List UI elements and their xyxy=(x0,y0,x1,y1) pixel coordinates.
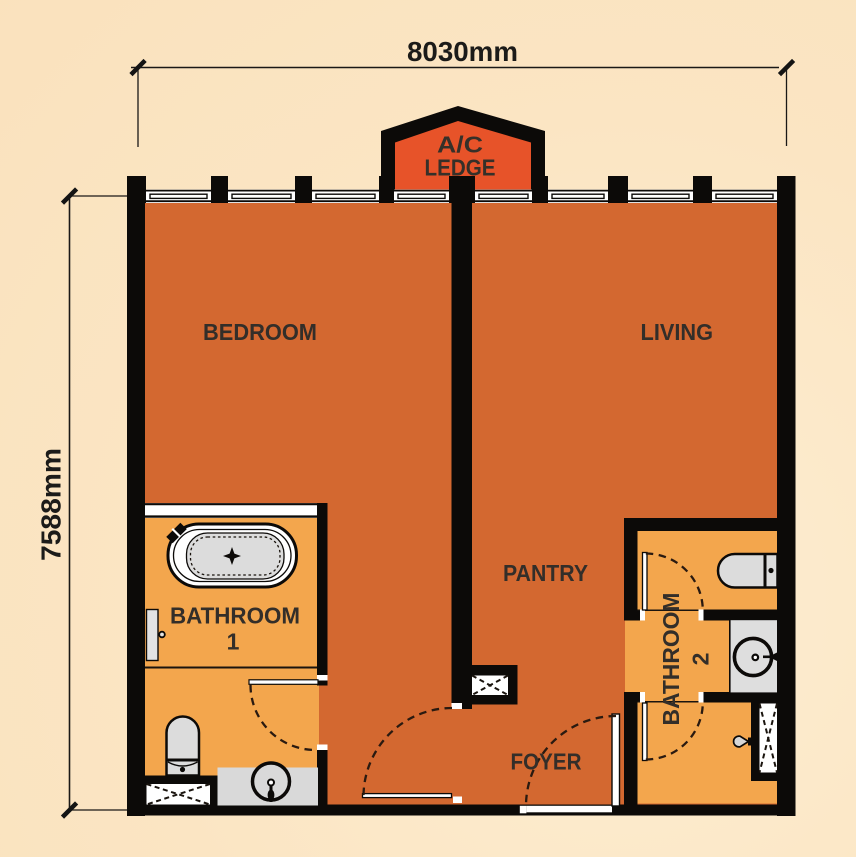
svg-text:8030mm: 8030mm xyxy=(407,36,518,67)
svg-text:7588mm: 7588mm xyxy=(36,448,67,561)
svg-text:BEDROOM: BEDROOM xyxy=(203,319,317,345)
svg-text:PANTRY: PANTRY xyxy=(503,560,588,586)
svg-text:LIVING: LIVING xyxy=(641,319,714,345)
svg-text:A/C: A/C xyxy=(437,131,483,157)
svg-text:2: 2 xyxy=(688,653,714,666)
svg-text:1: 1 xyxy=(227,628,240,654)
svg-text:FOYER: FOYER xyxy=(511,749,582,775)
svg-text:BATHROOM: BATHROOM xyxy=(170,602,300,628)
svg-text:BATHROOM: BATHROOM xyxy=(658,593,684,726)
